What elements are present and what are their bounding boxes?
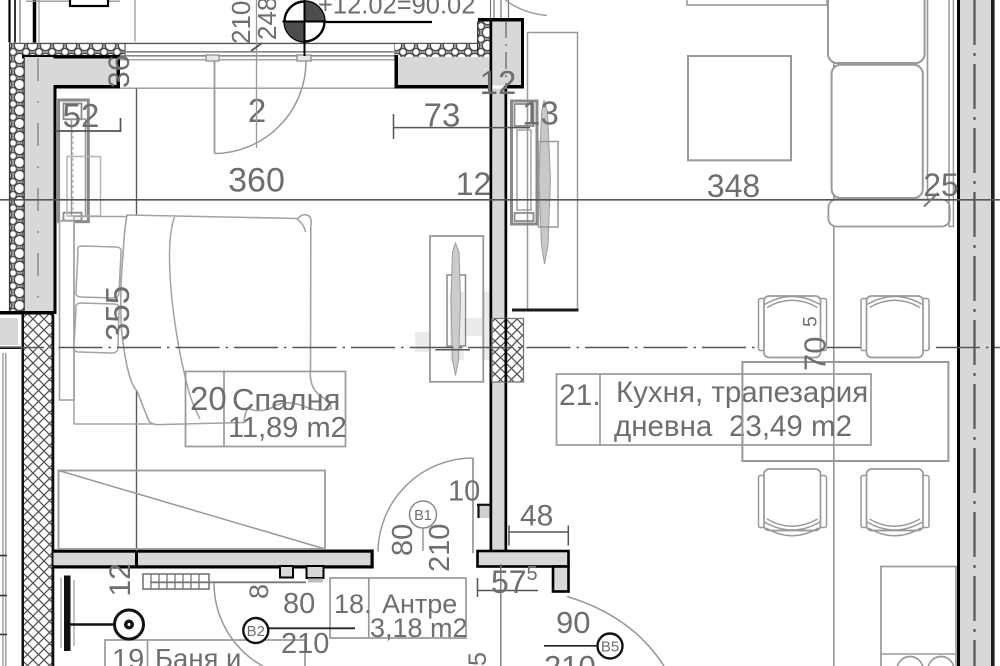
svg-text:8: 8	[244, 584, 274, 599]
svg-text:80: 80	[283, 588, 315, 620]
svg-text:48: 48	[520, 500, 553, 533]
svg-text:3,18 m2: 3,18 m2	[370, 613, 468, 643]
svg-text:210: 210	[424, 524, 456, 572]
svg-text:20: 20	[190, 380, 227, 417]
svg-text:210: 210	[281, 628, 329, 660]
svg-text:12: 12	[104, 563, 137, 596]
svg-text:348: 348	[707, 168, 760, 204]
svg-text:13: 13	[522, 95, 559, 132]
svg-text:73: 73	[424, 97, 461, 134]
svg-text:Баня и: Баня и	[155, 643, 241, 666]
svg-text:25: 25	[923, 167, 959, 203]
svg-text:36: 36	[103, 55, 136, 88]
svg-text:B2: B2	[247, 623, 265, 640]
svg-text:18.: 18.	[334, 589, 372, 619]
svg-text:355: 355	[99, 286, 136, 341]
svg-text:19: 19	[112, 644, 144, 666]
svg-text:12: 12	[480, 64, 517, 101]
svg-text:23,49 m2: 23,49 m2	[729, 410, 852, 443]
svg-text:80: 80	[387, 524, 419, 556]
svg-text:11,89 m2: 11,89 m2	[228, 412, 347, 444]
svg-text:90: 90	[556, 605, 590, 640]
svg-text:360: 360	[228, 162, 285, 200]
svg-text:B5: B5	[601, 639, 619, 656]
svg-text:5: 5	[464, 652, 492, 666]
svg-text:5: 5	[800, 316, 822, 327]
svg-text:12: 12	[456, 166, 492, 202]
svg-text:52: 52	[63, 97, 100, 134]
svg-text:210: 210	[544, 649, 596, 666]
svg-text:5: 5	[527, 563, 538, 585]
svg-text:дневна: дневна	[614, 410, 713, 443]
svg-text:57: 57	[491, 564, 527, 600]
svg-text:B1: B1	[414, 508, 432, 524]
svg-text:+12.02=90.02: +12.02=90.02	[318, 0, 475, 20]
svg-text:70: 70	[798, 337, 833, 371]
svg-text:10: 10	[448, 476, 480, 508]
svg-text:21.: 21.	[559, 379, 601, 412]
